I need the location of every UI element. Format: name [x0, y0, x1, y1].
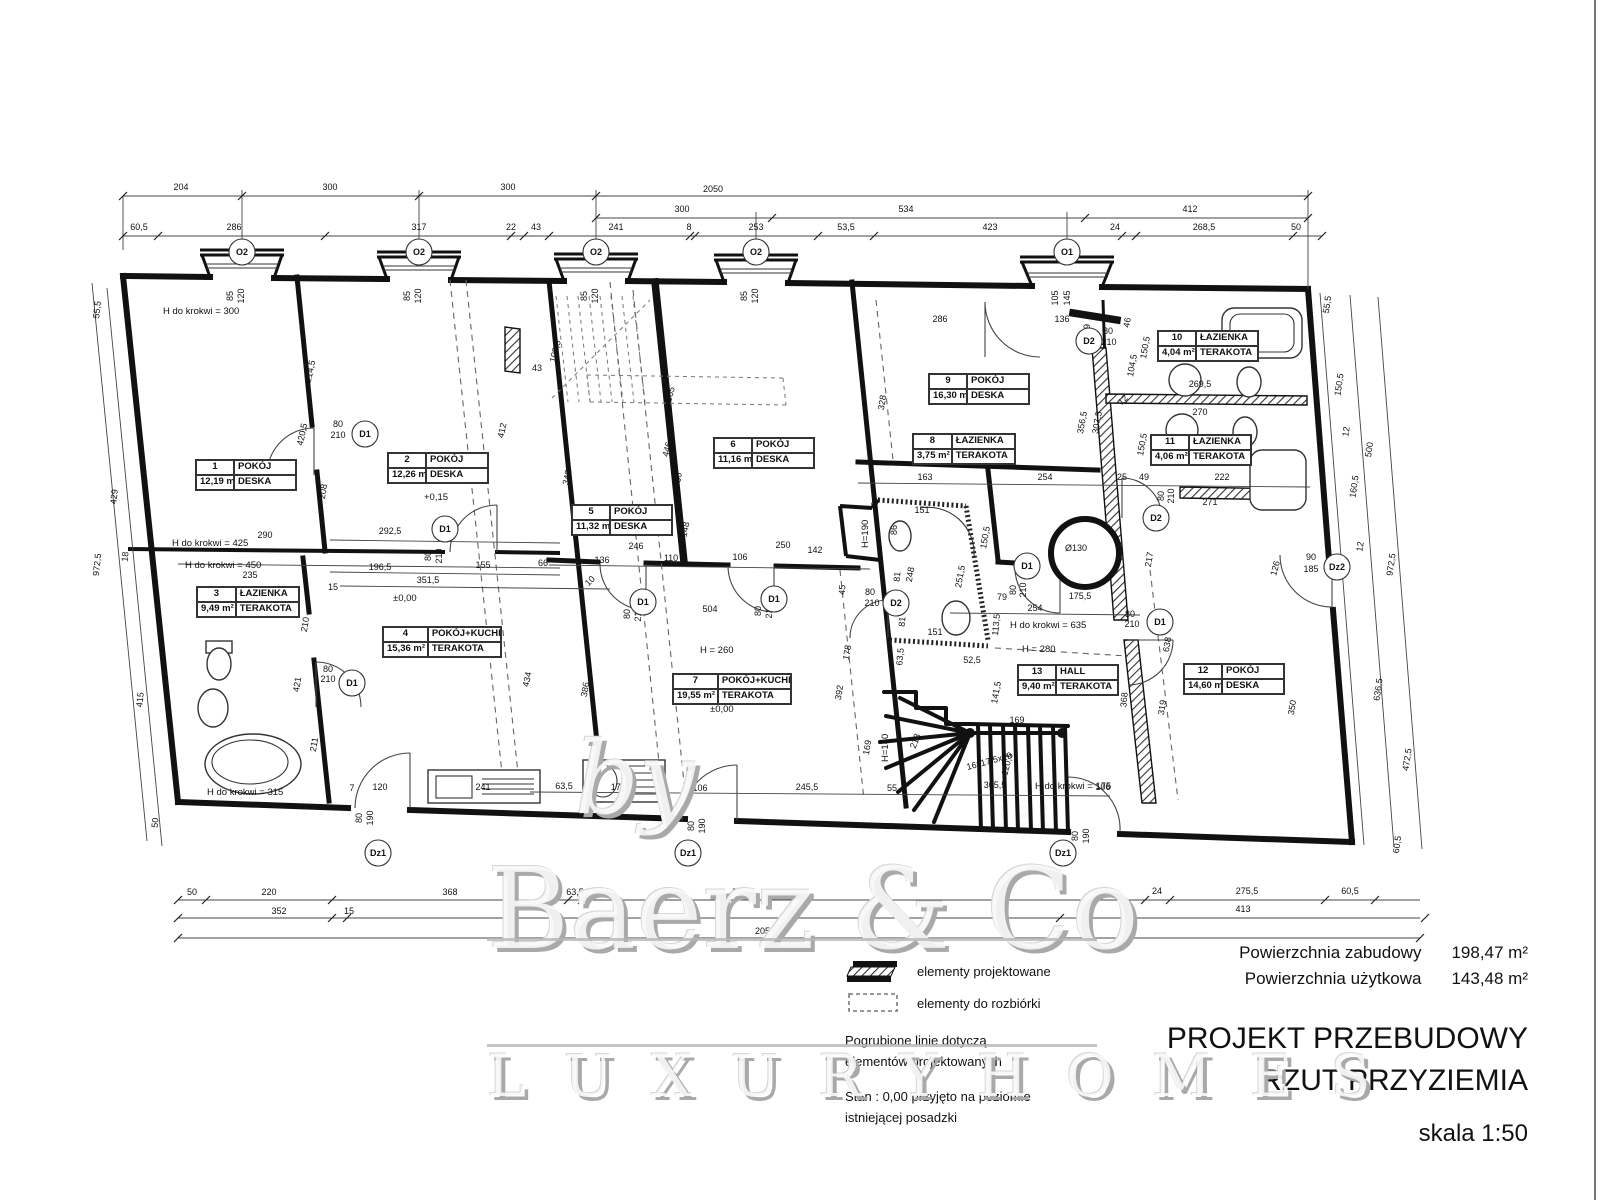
column [1051, 519, 1119, 587]
room-label-11: 11ŁAZIENKA4,06 m²TERAKOTA [1150, 434, 1252, 466]
dim-text: 270 [1192, 407, 1207, 417]
marker-D2: D2 [1076, 328, 1102, 354]
dim-text: 300 [500, 182, 515, 192]
dim-text: 22 [506, 222, 516, 232]
dim-text: 50 [1291, 222, 1301, 232]
dim-text: 79 [997, 592, 1007, 602]
room-label-cell: ŁAZIENKA [952, 434, 1015, 449]
svg-text:D1: D1 [1154, 617, 1166, 627]
room-label-cell: 3 [197, 587, 236, 602]
room-label-cell: 9,40 m² [1018, 680, 1056, 695]
dim-text: 196,5 [369, 562, 392, 572]
area-usable-label: Powierzchnia użytkowa [1150, 966, 1421, 992]
dim-text: 90 [1306, 552, 1316, 562]
dim-text: 169 [861, 739, 873, 756]
dim-text: 55,5 [1321, 295, 1333, 314]
room-label-cell: POKÓJ [752, 438, 814, 453]
dim-text: 271 [1202, 497, 1217, 507]
room-label-cell: 13 [1018, 665, 1056, 680]
room-label-cell: 9,49 m² [197, 602, 236, 617]
dim-text: 210 [1018, 582, 1028, 597]
dim-text: 60,5 [130, 222, 148, 232]
room-label-6: 6POKÓJ11,16 m²DESKA [713, 437, 815, 469]
room-label-cell: TERAKOTA [1196, 346, 1258, 361]
svg-text:Dz1: Dz1 [1055, 848, 1071, 858]
room-label-cell: 4 [383, 627, 428, 642]
dim-text: 412 [496, 422, 509, 439]
dim-text: 150,5 [1138, 336, 1152, 360]
dim-text: 110 [664, 553, 678, 563]
sheet-edge [1594, 0, 1596, 1200]
room-label-cell: HALL [1056, 665, 1118, 680]
svg-text:Dz1: Dz1 [680, 848, 696, 858]
dim-text: 120 [590, 288, 600, 303]
dim-text: 150,5 [1135, 433, 1149, 457]
kitchen7-counter [583, 760, 665, 802]
dim-text: 434 [521, 671, 534, 688]
room-label-cell: 4,04 m² [1158, 346, 1196, 361]
dim-text: 32 [869, 496, 881, 508]
dim-text: 49 [1139, 472, 1149, 482]
dim-text: 85 [225, 291, 235, 301]
dim-text: 163 [917, 472, 932, 482]
dim-text: 217 [1143, 551, 1155, 568]
dim-text: 2050 [755, 926, 775, 936]
dim-text: 251,5 [953, 565, 967, 589]
dim-text: 81 [892, 571, 903, 582]
dim-text: 104,5 [1125, 354, 1139, 378]
marker-D1: D1 [352, 421, 378, 447]
dim-text: 972,5 [1385, 553, 1398, 577]
dim-text: 85 [739, 291, 749, 301]
room-label-cell: 12,19 m² [196, 475, 234, 490]
dim-text: 254 [1027, 603, 1042, 613]
dim-text: 85 [579, 291, 589, 301]
dim-text: 18 [120, 551, 131, 562]
dim-text: 12 [1340, 426, 1351, 437]
svg-text:O2: O2 [413, 247, 425, 257]
room-label-cell: TERAKOTA [1056, 680, 1118, 695]
dim-text: 120 [750, 288, 760, 303]
dim-text: Ø130 [1065, 543, 1087, 553]
marker-O2: O2 [743, 239, 769, 265]
marker-Dz1: Dz1 [1050, 840, 1076, 866]
dim-text: 50 [187, 887, 197, 897]
svg-text:O2: O2 [236, 247, 248, 257]
dim-text: 85 [402, 291, 412, 301]
dim-text: 108,5 [547, 339, 562, 363]
dim-text: 80 [1070, 831, 1080, 841]
dim-text: 241 [608, 222, 623, 232]
dim-text: 10 [583, 574, 597, 588]
svg-text:O2: O2 [590, 247, 602, 257]
legend-note1-line2: elementów projektowanych [845, 1051, 1145, 1072]
room-label-cell: 4,06 m² [1151, 450, 1189, 465]
area-built-label: Powierzchnia zabudowy [1150, 940, 1421, 966]
dim-text: 211 [308, 737, 320, 753]
dim-text: 105 [1050, 290, 1060, 305]
dim-text: 80 [753, 606, 763, 616]
svg-text:D1: D1 [346, 678, 358, 688]
dim-text: 43 [531, 222, 541, 232]
room-label-cell: 15,36 m² [383, 642, 428, 657]
dim-text: 420,5 [295, 422, 309, 446]
room-label-cell: 3,75 m² [913, 449, 952, 464]
dim-text: 210 [299, 616, 311, 633]
room-label-cell: 11 [1151, 435, 1189, 450]
dim-text: 24 [1110, 222, 1120, 232]
room-label-cell: POKÓJ [610, 505, 672, 520]
project-title-line2: RZUT PRZYZIEMIA [1150, 1060, 1528, 1102]
dim-text: 290 [257, 530, 272, 540]
dim-text: 317 [411, 222, 426, 232]
dim-text: 210 [864, 598, 879, 608]
dim-text: 204 [173, 182, 188, 192]
room-label-12: 12POKÓJ14,60 m²DESKA [1183, 663, 1285, 695]
dim-text: 80 [1125, 609, 1135, 619]
dim-text: 423 [982, 222, 997, 232]
dim-text: 80 [323, 664, 333, 674]
annotation-text: H = 260 [700, 645, 734, 656]
marker-Dz1: Dz1 [365, 840, 391, 866]
room-label-cell: POKÓJ [1222, 664, 1284, 679]
legend: elementy projektowane elementy do rozbió… [845, 958, 1145, 1128]
marker-D1: D1 [1147, 609, 1173, 635]
dim-text: 66 [538, 558, 548, 568]
dim-text: 80 [1008, 585, 1018, 595]
dim-text: 2050 [703, 184, 723, 194]
annotation-text: H do krokwi = 300 [163, 306, 239, 317]
room-label-cell: 19,55 m² [673, 689, 718, 704]
room-label-cell: POKÓJ+KUCHNIA [428, 627, 501, 642]
marker-D2: D2 [883, 590, 909, 616]
bath3-fixtures [198, 641, 301, 794]
room-label-cell: 2 [388, 453, 426, 468]
dim-text: 351,5 [417, 575, 440, 585]
dim-text: 350 [1286, 699, 1298, 716]
room-label-cell: 10 [1158, 331, 1196, 346]
dim-text: 392 [833, 684, 845, 701]
dim-text: 210 [1166, 488, 1176, 503]
dim-text: 300 [674, 204, 689, 214]
dim-text: 472,5 [1401, 748, 1414, 772]
room-label-cell: TERAKOTA [1189, 450, 1251, 465]
room-label-8: 8ŁAZIENKA3,75 m²TERAKOTA [912, 433, 1016, 465]
marker-D1: D1 [432, 516, 458, 542]
dim-text: 160,5 [1348, 475, 1361, 499]
dim-text: 504 [702, 604, 717, 614]
room-label-cell: TERAKOTA [718, 689, 791, 704]
svg-text:D1: D1 [359, 429, 371, 439]
dim-text: 24 [1152, 886, 1162, 896]
dim-text: 12 [1354, 541, 1365, 552]
marker-Dz2: Dz2 [1324, 554, 1350, 580]
dim-text: 275,5 [1236, 886, 1259, 896]
dim-text: 63,5 [566, 887, 584, 897]
dim-text: 245,5 [796, 782, 819, 792]
dim-text: 253 [748, 222, 763, 232]
dim-text: 55,5 [91, 300, 103, 318]
dim-text: 120 [413, 288, 423, 303]
room-label-cell: ŁAZIENKA [236, 587, 299, 602]
dim-text: 15 [344, 906, 354, 916]
dim-text: 222 [1214, 472, 1229, 482]
dim-text: 185 [1303, 564, 1318, 574]
dim-text: 368 [442, 887, 457, 897]
dim-text: 413 [1235, 904, 1250, 914]
marker-Dz1: Dz1 [675, 840, 701, 866]
room-label-cell: 12,26 m² [388, 468, 426, 483]
room-label-cell: 6 [714, 438, 752, 453]
dim-text: 368 [1118, 692, 1129, 708]
interior-walls [128, 277, 1117, 806]
room-label-7: 7POKÓJ+KUCHNIA19,55 m²TERAKOTA [672, 673, 792, 705]
dim-text: 120 [372, 782, 387, 792]
room-label-cell: DESKA [426, 468, 488, 483]
dim-text: 328 [876, 394, 888, 411]
room-label-2: 2POKÓJ12,26 m²DESKA [387, 452, 489, 484]
dim-text: 178 [841, 644, 853, 661]
legend-item-projected: elementy projektowane [917, 964, 1051, 979]
dim-text: 106 [692, 783, 707, 793]
room-label-cell: 16,30 m² [929, 389, 967, 404]
dim-text: 126 [1268, 560, 1282, 577]
dim-text: 636,5 [1372, 678, 1385, 702]
floor-plan-sheet: 204300300205030053441260,528631722432418… [0, 0, 1600, 1200]
marker-D1: D1 [339, 670, 365, 696]
room-label-cell: TERAKOTA [952, 449, 1015, 464]
legend-swatch-projected-icon [845, 958, 903, 984]
room-label-cell: ŁAZIENKA [1189, 435, 1251, 450]
dim-text: 286 [932, 314, 947, 324]
legend-note2-line2: istniejącej posadzki [845, 1107, 1145, 1128]
room-label-cell: POKÓJ [234, 460, 296, 475]
dim-text: 500 [1363, 441, 1375, 457]
dim-text: 534 [898, 204, 913, 214]
room-label-13: 13HALL9,40 m²TERAKOTA [1017, 664, 1119, 696]
marker-O2: O2 [229, 239, 255, 265]
dim-text: 86 [889, 525, 899, 535]
dim-text: 80 [333, 419, 343, 429]
dim-text: 80 [423, 551, 433, 561]
legend-item-demolition: elementy do rozbiórki [917, 996, 1041, 1011]
svg-text:D2: D2 [890, 598, 902, 608]
dim-text: 412 [1182, 204, 1197, 214]
marker-D1: D1 [1014, 553, 1040, 579]
dim-text: 190 [697, 818, 707, 833]
dim-text: 235 [242, 570, 257, 580]
dim-text: 148 [679, 521, 692, 538]
dim-text: 80 [686, 821, 696, 831]
room-label-cell: TERAKOTA [428, 642, 501, 657]
dim-text: 142 [807, 545, 822, 555]
room-label-cell: DESKA [967, 389, 1029, 404]
title-block: Powierzchnia zabudowy 198,47 m² Powierzc… [1150, 940, 1532, 1148]
svg-text:O2: O2 [750, 247, 762, 257]
dim-text: 106 [732, 552, 747, 562]
annotation-text: H do krokwi = 635 [1010, 620, 1086, 631]
dim-text: 55 [887, 783, 897, 793]
dim-text: 190 [365, 810, 375, 825]
svg-text:D2: D2 [1150, 513, 1162, 523]
dim-text: 46 [1121, 317, 1133, 329]
room-label-cell: DESKA [1222, 679, 1284, 694]
svg-text:D1: D1 [1021, 561, 1033, 571]
dim-text: 220 [261, 887, 276, 897]
svg-text:Dz2: Dz2 [1329, 562, 1345, 572]
dim-text: 429 [108, 489, 120, 505]
dim-text: 268,5 [1193, 222, 1216, 232]
dim-text: 136 [594, 555, 609, 565]
room-label-cell: ŁAZIENKA [1196, 331, 1258, 346]
dim-text: 15 [328, 582, 338, 592]
dim-text: 50 [150, 817, 161, 828]
room-label-cell: 7 [673, 674, 718, 689]
dim-text: 43 [532, 363, 542, 373]
room-label-cell: DESKA [752, 453, 814, 468]
dim-text: 80 [1103, 326, 1113, 336]
projected-walls [505, 327, 1307, 803]
dim-text: 250 [775, 540, 790, 550]
svg-text:D1: D1 [637, 597, 649, 607]
annotation-text: H do krokwi = 315 [207, 787, 283, 798]
dim-text: 210 [320, 674, 335, 684]
dim-text: 151 [927, 627, 942, 637]
dim-text: 421 [291, 676, 303, 693]
dim-text: 45 [837, 584, 848, 595]
dim-text: 319 [1156, 699, 1168, 716]
marker-D1: D1 [630, 589, 656, 615]
dim-text: 150,5 [1333, 373, 1346, 397]
room-label-cell: 9 [929, 374, 967, 389]
annotation-text: ±0,00 [710, 704, 734, 715]
dim-text: 415 [134, 692, 146, 708]
annotation-text: H = 280 [1022, 644, 1056, 655]
drawing-scale: skala 1:50 [1150, 1120, 1532, 1148]
dim-text: 210 [434, 548, 444, 563]
dim-text: 60,5 [1341, 886, 1359, 896]
dim-text: 81 [897, 616, 908, 627]
dim-text: 352 [271, 906, 286, 916]
dim-text: 136 [1054, 314, 1069, 324]
dim-text: 63,5 [555, 781, 573, 791]
dim-text: 25 [1117, 472, 1127, 482]
svg-text:D1: D1 [439, 524, 451, 534]
dim-text: 241 [475, 782, 490, 792]
annotation-text: H=190 [860, 520, 871, 548]
project-title-line1: PROJEKT PRZEBUDOWY [1150, 1018, 1528, 1060]
dim-text: 113,5 [990, 613, 1002, 636]
dim-text: 141,5 [989, 681, 1003, 705]
room-label-10: 10ŁAZIENKA4,04 m²TERAKOTA [1157, 330, 1259, 362]
dim-text: 292,5 [379, 526, 402, 536]
dim-text: 80 [622, 609, 632, 619]
dim-text: 7 [349, 783, 354, 793]
dim-text: 286 [226, 222, 241, 232]
dim-text: 151 [914, 505, 929, 515]
room-label-cell: TERAKOTA [236, 602, 299, 617]
dim-text: 356,5 [1075, 411, 1089, 435]
annotation-text: H do krokwi = 175 [1035, 781, 1111, 792]
dim-text: 507 [732, 887, 747, 897]
annotation-text: H do krokwi = 425 [172, 538, 248, 549]
svg-text:D1: D1 [768, 594, 780, 604]
area-usable-value: 143,48 m² [1451, 966, 1528, 992]
room-label-cell: DESKA [234, 475, 296, 490]
dim-text: 300 [322, 182, 337, 192]
dim-text: 36 [672, 472, 684, 484]
room-label-cell: POKÓJ+KUCHNIA [718, 674, 791, 689]
room-label-9: 9POKÓJ16,30 m²DESKA [928, 373, 1030, 405]
room-label-cell: 1 [196, 460, 234, 475]
room-label-cell: POKÓJ [967, 374, 1029, 389]
room-label-3: 3ŁAZIENKA9,49 m²TERAKOTA [196, 586, 300, 618]
room-label-cell: POKÓJ [426, 453, 488, 468]
dim-text: 145 [1062, 290, 1072, 305]
dim-text: 60,5 [1391, 835, 1403, 854]
room-label-4: 4POKÓJ+KUCHNIA15,36 m²TERAKOTA [382, 626, 502, 658]
dim-text: 175,5 [1069, 591, 1092, 601]
dim-text: 169 [1009, 715, 1024, 725]
room-label-cell: 11,32 m² [572, 520, 610, 535]
dim-text: 210 [1101, 337, 1116, 347]
dim-text: 210 [1124, 619, 1139, 629]
legend-swatch-demolition-icon [845, 990, 903, 1016]
room-label-cell: DESKA [610, 520, 672, 535]
room-label-cell: 12 [1184, 664, 1222, 679]
marker-O2: O2 [406, 239, 432, 265]
dim-text: 254 [1037, 472, 1052, 482]
dim-text: 175,5 [611, 782, 634, 792]
marker-O1: O1 [1054, 239, 1080, 265]
marker-O2: O2 [583, 239, 609, 265]
dim-text: 150,5 [978, 526, 992, 550]
dim-text: 305,5 [984, 780, 1007, 790]
room-label-cell: 8 [913, 434, 952, 449]
dim-text: 80 [354, 813, 364, 823]
dim-text: 210 [330, 430, 345, 440]
area-built-value: 198,47 m² [1451, 940, 1528, 966]
dim-text: 269,5 [1189, 379, 1212, 389]
dim-text: 155 [475, 560, 490, 570]
dim-text: 8 [686, 222, 691, 232]
dim-text: 63,5 [894, 648, 905, 666]
dim-text: 53,5 [837, 222, 855, 232]
svg-text:D2: D2 [1083, 336, 1095, 346]
dim-text: 213 [908, 732, 923, 750]
annotation-text: +0,15 [424, 492, 448, 503]
dim-text: 190 [1081, 828, 1091, 843]
marker-D1: D1 [761, 586, 787, 612]
marker-D2: D2 [1143, 505, 1169, 531]
room-label-cell: 14,60 m² [1184, 679, 1222, 694]
room-label-cell: 5 [572, 505, 610, 520]
legend-note2-line1: Stan : 0,00 przyjęto na poziomie [845, 1086, 1145, 1107]
dim-text: 386 [579, 681, 591, 698]
dim-text: 80 [865, 587, 875, 597]
svg-text:Dz1: Dz1 [370, 848, 386, 858]
dim-text: 248 [904, 566, 916, 583]
room-label-1: 1POKÓJ12,19 m²DESKA [195, 459, 297, 491]
annotation-text: H do krokwi = 450 [185, 560, 261, 571]
svg-text:O1: O1 [1061, 247, 1073, 257]
dim-text: 208 [317, 483, 329, 500]
legend-note1-line1: Pogrubione linie dotyczą [845, 1030, 1145, 1051]
dim-text: 972,5 [91, 553, 103, 576]
room-label-cell: 11,16 m² [714, 453, 752, 468]
dim-text: 52,5 [963, 655, 981, 665]
annotation-text: H=140 [880, 734, 891, 762]
